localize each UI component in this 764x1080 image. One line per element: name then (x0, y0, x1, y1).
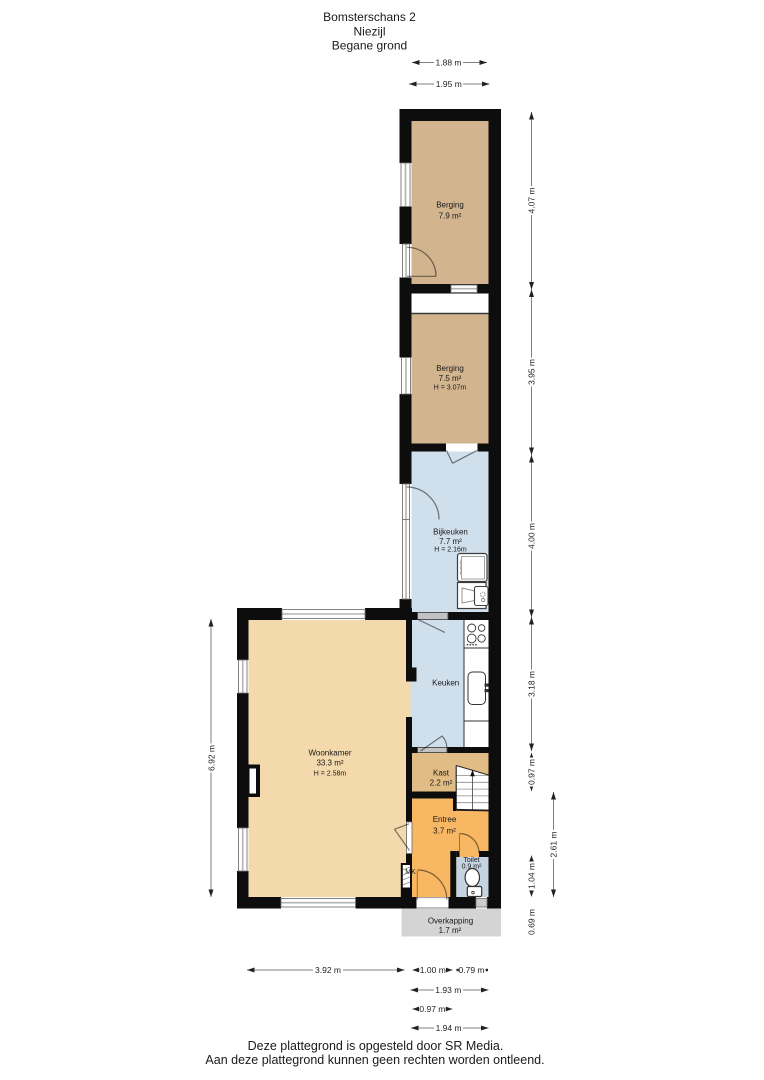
svg-text:MK: MK (405, 869, 416, 876)
svg-text:Keuken: Keuken (432, 679, 459, 688)
svg-text:3.92 m: 3.92 m (315, 965, 341, 975)
svg-text:1.7 m²: 1.7 m² (439, 926, 462, 935)
svg-text:Berging: Berging (436, 364, 464, 373)
svg-text:Overkapping: Overkapping (428, 917, 473, 926)
svg-text:Berging: Berging (436, 201, 464, 210)
svg-text:1.95 m: 1.95 m (436, 79, 462, 89)
svg-text:H = 2.58m: H = 2.58m (314, 770, 347, 777)
svg-text:7.5 m²: 7.5 m² (439, 374, 462, 383)
svg-text:Kast: Kast (433, 769, 450, 778)
svg-text:1.04 m: 1.04 m (527, 863, 537, 889)
svg-text:3.18 m: 3.18 m (527, 671, 537, 697)
svg-text:Bijkeuken: Bijkeuken (433, 527, 468, 536)
svg-text:1.88 m: 1.88 m (436, 58, 462, 68)
svg-text:Aan deze plattegrond kunnen ge: Aan deze plattegrond kunnen geen rechten… (205, 1053, 544, 1067)
svg-text:1.00 m: 1.00 m (420, 965, 446, 975)
svg-text:Entree: Entree (433, 815, 457, 824)
svg-text:H = 2.16m: H = 2.16m (434, 546, 467, 553)
svg-text:7.9 m²: 7.9 m² (439, 212, 462, 221)
svg-text:4.07 m: 4.07 m (527, 188, 537, 214)
svg-text:7.7 m²: 7.7 m² (439, 537, 462, 546)
svg-text:0.97 m: 0.97 m (419, 1004, 445, 1014)
svg-text:1.94 m: 1.94 m (436, 1023, 462, 1033)
svg-text:33.3 m²: 33.3 m² (316, 759, 343, 768)
svg-text:Deze plattegrond is opgesteld: Deze plattegrond is opgesteld door SR Me… (248, 1039, 504, 1053)
svg-text:2.2 m²: 2.2 m² (430, 779, 453, 788)
svg-text:0.69 m: 0.69 m (527, 909, 537, 935)
svg-text:Bomsterschans 2: Bomsterschans 2 (323, 10, 416, 24)
svg-text:2.61 m: 2.61 m (549, 832, 559, 858)
svg-text:0.97 m: 0.97 m (527, 759, 537, 785)
svg-text:3.7 m²: 3.7 m² (433, 827, 456, 836)
svg-text:0.79 m: 0.79 m (459, 965, 485, 975)
svg-text:Niezijl: Niezijl (353, 24, 385, 38)
svg-text:1.93 m: 1.93 m (435, 985, 461, 995)
svg-text:4.00 m: 4.00 m (527, 523, 537, 549)
svg-text:3.95 m: 3.95 m (527, 359, 537, 385)
svg-text:6.92 m: 6.92 m (207, 745, 217, 771)
svg-text:Woonkamer: Woonkamer (309, 749, 352, 758)
svg-text:Begane grond: Begane grond (332, 39, 407, 53)
svg-text:H = 3.07m: H = 3.07m (434, 385, 467, 392)
